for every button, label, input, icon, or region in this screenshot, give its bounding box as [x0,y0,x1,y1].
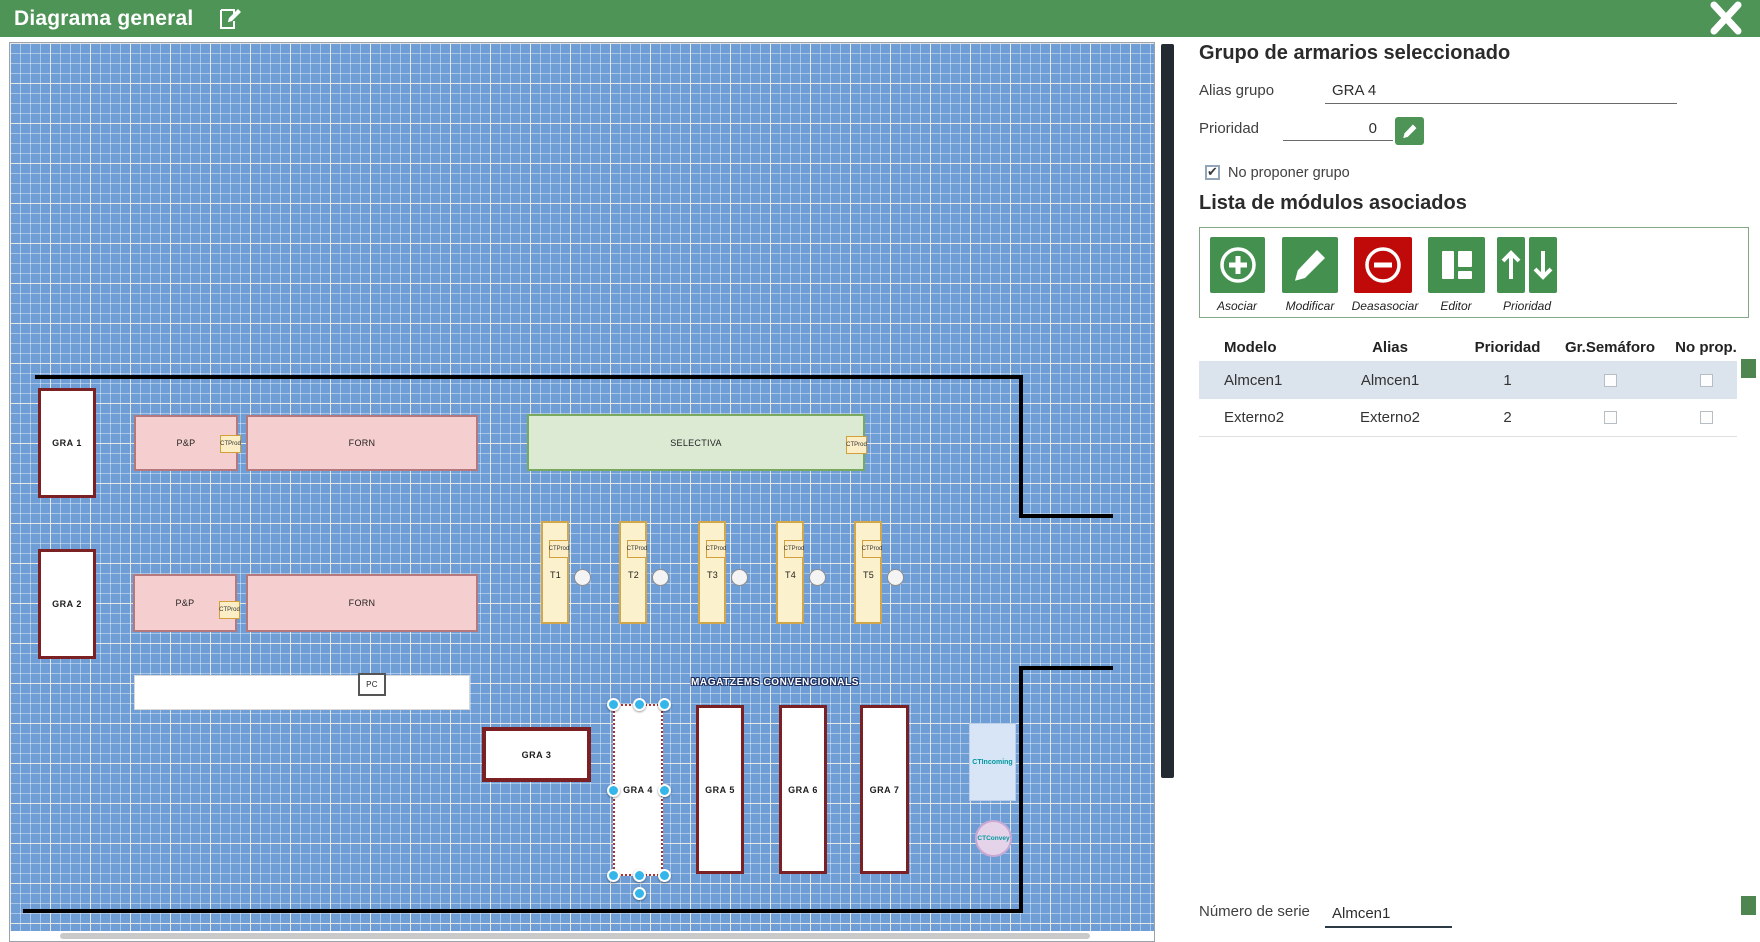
module-label: T4 [785,570,796,580]
panel-title: Grupo de armarios seleccionado [1199,42,1510,65]
module-label: CTProd [846,442,867,448]
asociar-button-label: Asociar [1207,299,1267,313]
priority-up-button[interactable] [1497,237,1525,293]
column-header-modelo: Modelo [1199,339,1310,356]
module-label: P&P [177,438,196,448]
module-label: GRA 5 [705,785,735,795]
layout-icon [1436,244,1478,286]
boundary-line [1019,375,1023,518]
column-header-prioridad: Prioridad [1470,339,1545,356]
connector-dot[interactable] [652,569,669,586]
column-header-gr-semaforo: Gr.Semáforo [1545,339,1675,356]
no-propose-label: No proponer grupo [1228,165,1350,181]
module-label: GRA 4 [623,785,653,795]
table-scroll-marker-top[interactable] [1741,359,1756,378]
cell-prioridad: 1 [1470,372,1545,389]
module-ctprod[interactable]: CTProd [846,436,867,454]
cell-modelo: Almcen1 [1199,372,1310,389]
selection-handle[interactable] [633,698,646,711]
module-gra6[interactable]: GRA 6 [779,705,827,874]
table-scroll-marker-bottom[interactable] [1741,896,1756,915]
priority-edit-button[interactable] [1395,117,1424,145]
module-selectiva[interactable]: SELECTIVA CTProd [527,414,865,471]
alias-group-underline [1325,103,1677,104]
module-label: T2 [628,570,639,580]
no-propose-checkbox[interactable] [1205,165,1220,180]
modules-table-header: Modelo Alias Prioridad Gr.Semáforo No pr… [1199,334,1737,360]
titlebar: Diagrama general [0,0,1760,37]
gr-semaforo-checkbox[interactable] [1604,411,1617,424]
module-label: T1 [550,570,561,580]
cell-alias: Externo2 [1310,409,1470,426]
alias-group-input[interactable]: GRA 4 [1332,82,1376,99]
module-ctprod[interactable]: CTProd [219,601,240,619]
module-gra1[interactable]: GRA 1 [38,388,96,498]
area-title-magatzems: MAGATZEMS CONVENCIONALS [610,677,940,688]
module-label: GRA 2 [52,599,82,609]
boundary-line [1019,666,1113,670]
deasasociar-button-label: Deasasociar [1345,299,1425,313]
connector-dot[interactable] [731,569,748,586]
serial-number-underline [1325,926,1452,928]
gr-semaforo-checkbox[interactable] [1604,374,1617,387]
no-prop-checkbox[interactable] [1700,374,1713,387]
modules-list-title: Lista de módulos asociados [1199,192,1467,215]
module-t3[interactable]: CTProd T3 [698,521,726,624]
table-row[interactable]: Externo2 Externo2 2 [1199,399,1737,437]
module-ctincoming[interactable]: CTIncoming [969,723,1016,801]
module-label: CTProd [784,546,805,552]
priority-down-button[interactable] [1529,237,1557,293]
module-ctprod[interactable]: CTProd [627,540,647,558]
boundary-line [23,909,1023,913]
module-pc-bar[interactable] [134,675,470,710]
selection-handle[interactable] [607,698,620,711]
module-t2[interactable]: CTProd T2 [619,521,647,624]
close-icon[interactable] [1706,1,1746,35]
module-label: GRA 6 [788,785,818,795]
deasasociar-button[interactable] [1354,237,1412,293]
module-label: GRA 1 [52,438,82,448]
module-ctprod[interactable]: CTProd [784,540,804,558]
module-gra7[interactable]: GRA 7 [860,705,909,874]
selection-handle[interactable] [658,784,671,797]
boundary-line [1019,666,1023,913]
selection-handle[interactable] [607,869,620,882]
cell-modelo: Externo2 [1199,409,1310,426]
module-label: T5 [863,570,874,580]
module-gra5[interactable]: GRA 5 [696,705,744,874]
module-label: CTProd [219,607,240,613]
connector-dot[interactable] [574,569,591,586]
module-label: CTProd [549,546,570,552]
module-ctconvey[interactable]: CTConvey [975,820,1012,857]
pencil-icon [1289,244,1331,286]
edit-diagram-icon[interactable] [217,6,243,32]
priority-underline [1283,140,1393,141]
cell-prioridad: 2 [1470,409,1545,426]
module-t4[interactable]: CTProd T4 [776,521,804,624]
window-title: Diagrama general [14,7,193,31]
selection-handle[interactable] [658,869,671,882]
editor-button-label: Editor [1426,299,1486,313]
module-label: FORN [349,598,376,608]
horizontal-scrollbar[interactable] [10,931,1154,941]
vertical-scrollbar-thumb[interactable] [1161,44,1174,778]
module-pc[interactable]: PC [358,673,386,696]
module-ctprod[interactable]: CTProd [549,540,569,558]
module-label: GRA 7 [870,785,900,795]
module-label: FORN [349,438,376,448]
rotation-handle[interactable] [633,887,646,900]
column-header-alias: Alias [1310,339,1470,356]
cell-alias: Almcen1 [1310,372,1470,389]
diagram-editor-window: Diagrama general GRA 1 GRA 2 [0,0,1760,942]
no-prop-checkbox[interactable] [1700,411,1713,424]
diagram-canvas-container: GRA 1 GRA 2 P&P CTProd FORN SELECTIVA CT… [9,42,1155,942]
connector-dot[interactable] [809,569,826,586]
module-label: T3 [707,570,718,580]
diagram-canvas[interactable]: GRA 1 GRA 2 P&P CTProd FORN SELECTIVA CT… [10,43,1154,931]
selection-handle[interactable] [658,698,671,711]
selection-handle[interactable] [633,869,646,882]
module-gra3[interactable]: GRA 3 [482,727,591,782]
module-label: CTIncoming [972,759,1012,766]
priority-input[interactable]: 0 [1285,120,1377,137]
module-ctprod[interactable]: CTProd [220,435,241,453]
pencil-icon [1401,122,1419,140]
selection-handle[interactable] [607,784,620,797]
module-label: GRA 3 [522,750,552,760]
serial-number-input[interactable]: Almcen1 [1332,905,1390,922]
modificar-button[interactable] [1282,237,1338,293]
module-label: P&P [176,598,195,608]
column-header-no-prop: No prop. [1675,339,1737,356]
module-ctprod[interactable]: CTProd [706,540,726,558]
alias-group-label: Alias grupo [1199,82,1274,99]
arrow-up-icon [1499,245,1523,285]
module-label: CTProd [220,441,241,447]
boundary-line [35,375,1023,379]
table-row[interactable]: Almcen1 Almcen1 1 [1199,361,1737,399]
module-label: PC [366,680,378,689]
plus-circle-icon [1216,243,1260,287]
module-ctprod[interactable]: CTProd [862,540,882,558]
serial-number-label: Número de serie [1199,903,1310,920]
boundary-line [1019,514,1113,518]
editor-button[interactable] [1428,237,1485,293]
module-pp-top[interactable]: P&P CTProd [134,415,238,471]
module-t1[interactable]: CTProd T1 [541,521,569,624]
asociar-button[interactable] [1210,237,1265,293]
module-t5[interactable]: CTProd T5 [854,521,882,624]
arrow-down-icon [1531,245,1555,285]
connector-dot[interactable] [887,569,904,586]
prioridad-button-label: Prioridad [1492,299,1562,313]
module-label: CTProd [627,546,648,552]
module-gra4-selected[interactable]: GRA 4 [613,704,663,876]
module-label: CTProd [862,546,883,552]
module-pp-bottom[interactable]: P&P CTProd [133,574,237,632]
module-forn-bottom[interactable]: FORN [246,574,478,632]
module-label: CTConvey [977,835,1009,842]
modificar-button-label: Modificar [1275,299,1345,313]
minus-circle-icon [1361,243,1405,287]
priority-label: Prioridad [1199,120,1259,137]
module-label: SELECTIVA [670,438,722,448]
horizontal-scrollbar-thumb[interactable] [60,933,1090,939]
module-forn-top[interactable]: FORN [246,415,478,471]
module-gra2[interactable]: GRA 2 [38,549,96,659]
module-label: CTProd [706,546,727,552]
